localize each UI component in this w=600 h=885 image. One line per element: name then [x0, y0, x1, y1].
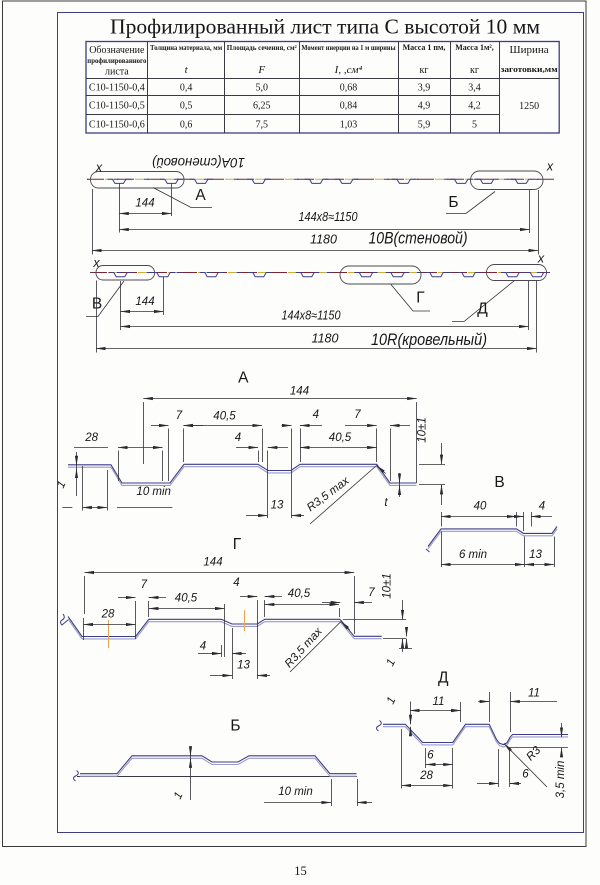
svg-text:5,9: 5,9 — [418, 119, 431, 130]
svg-text:4: 4 — [233, 577, 239, 589]
svg-text:5: 5 — [472, 119, 477, 130]
svg-text:Момент инерции на 1 м ширины: Момент инерции на 1 м ширины — [302, 45, 397, 52]
svg-text:Г: Г — [233, 536, 242, 553]
svg-text:40,5: 40,5 — [329, 432, 352, 444]
svg-text:Обозначение: Обозначение — [89, 45, 145, 56]
svg-text:15: 15 — [294, 864, 307, 878]
svg-text:профилированного: профилированного — [87, 58, 147, 65]
svg-text:40,5: 40,5 — [288, 588, 311, 600]
svg-text:13: 13 — [237, 660, 250, 672]
svg-text:С10-1150-0,5: С10-1150-0,5 — [89, 101, 145, 112]
svg-text:3,9: 3,9 — [418, 83, 431, 94]
svg-text:3,4: 3,4 — [468, 83, 481, 94]
svg-text:11: 11 — [528, 688, 540, 700]
svg-text:144x8≈1150: 144x8≈1150 — [282, 309, 341, 323]
svg-text:4,2: 4,2 — [468, 101, 481, 112]
svg-text:40,5: 40,5 — [213, 411, 236, 423]
svg-text:С10-1150-0,4: С10-1150-0,4 — [89, 83, 145, 94]
svg-text:кг: кг — [470, 65, 479, 76]
svg-text:Масса 1 пм,: Масса 1 пм, — [403, 43, 446, 52]
svg-text:Д: Д — [438, 670, 449, 687]
svg-text:В: В — [494, 474, 504, 491]
svg-text:7: 7 — [141, 579, 148, 591]
svg-text:4: 4 — [235, 432, 241, 444]
svg-text:Г: Г — [416, 290, 425, 307]
svg-text:10±1: 10±1 — [381, 573, 393, 599]
svg-text:4: 4 — [200, 641, 206, 653]
svg-text:144: 144 — [135, 198, 154, 210]
svg-text:28: 28 — [101, 609, 115, 621]
svg-text:144: 144 — [290, 386, 309, 398]
svg-text:28: 28 — [84, 432, 98, 444]
svg-text:I, ,см⁴: I, ,см⁴ — [334, 64, 363, 76]
svg-text:5,0: 5,0 — [256, 83, 269, 94]
svg-text:3,5 min: 3,5 min — [555, 761, 567, 799]
svg-text:144: 144 — [135, 296, 154, 308]
svg-text:Ширина: Ширина — [510, 44, 549, 56]
svg-text:10R(кровельный): 10R(кровельный) — [371, 330, 487, 349]
svg-text:1180: 1180 — [312, 332, 339, 346]
svg-text:Д: Д — [477, 301, 488, 318]
svg-text:С10-1150-0,6: С10-1150-0,6 — [89, 119, 145, 130]
svg-text:40,5: 40,5 — [175, 593, 198, 605]
svg-text:x: x — [537, 252, 545, 266]
svg-text:А: А — [195, 187, 206, 204]
svg-text:10 min: 10 min — [136, 486, 171, 498]
svg-text:Б: Б — [448, 194, 458, 211]
svg-text:Толщина материала, мм: Толщина материала, мм — [150, 45, 222, 52]
svg-text:6: 6 — [427, 750, 434, 762]
svg-text:7,5: 7,5 — [256, 119, 269, 130]
svg-text:1,03: 1,03 — [340, 119, 358, 130]
svg-text:7: 7 — [354, 409, 361, 421]
svg-text:0,4: 0,4 — [180, 83, 193, 94]
svg-text:10 min: 10 min — [278, 786, 313, 798]
svg-text:x: x — [92, 256, 100, 270]
svg-text:F: F — [257, 64, 265, 76]
svg-text:Профилированный лист типа С вы: Профилированный лист типа С высотой 10 м… — [110, 15, 540, 39]
svg-text:7: 7 — [176, 410, 183, 422]
svg-text:0,5: 0,5 — [180, 101, 193, 112]
svg-text:6,25: 6,25 — [253, 101, 271, 112]
svg-text:В: В — [92, 296, 102, 313]
svg-text:заготовки,мм: заготовки,мм — [501, 65, 559, 74]
svg-text:0,6: 0,6 — [180, 119, 193, 130]
svg-text:1250: 1250 — [519, 101, 539, 112]
svg-text:4: 4 — [539, 501, 545, 513]
svg-text:40: 40 — [474, 501, 487, 513]
svg-text:4: 4 — [313, 409, 319, 421]
svg-text:10В(стеновой): 10В(стеновой) — [369, 229, 468, 248]
svg-text:28: 28 — [419, 770, 433, 782]
svg-text:0,68: 0,68 — [340, 83, 358, 94]
svg-text:0,84: 0,84 — [340, 101, 358, 112]
svg-text:13: 13 — [271, 500, 284, 512]
svg-text:11: 11 — [433, 696, 445, 708]
svg-text:6 min: 6 min — [459, 549, 487, 561]
svg-text:10±1: 10±1 — [417, 417, 429, 443]
svg-text:144x8≈1150: 144x8≈1150 — [299, 210, 358, 224]
svg-text:13: 13 — [529, 549, 542, 561]
svg-text:листа: листа — [105, 67, 129, 78]
svg-text:6: 6 — [522, 769, 529, 781]
svg-text:10А(стеновой): 10А(стеновой) — [152, 155, 245, 170]
svg-text:144: 144 — [203, 557, 222, 569]
svg-text:Масса 1м²,: Масса 1м², — [455, 43, 494, 52]
svg-text:Б: Б — [230, 718, 240, 735]
svg-text:x: x — [546, 160, 554, 174]
svg-text:А: А — [238, 370, 249, 387]
svg-text:1180: 1180 — [310, 233, 337, 247]
svg-text:7: 7 — [368, 587, 375, 599]
svg-text:кг: кг — [420, 65, 429, 76]
svg-text:4,9: 4,9 — [418, 101, 431, 112]
svg-text:Площадь сечения, см²: Площадь сечения, см² — [227, 45, 297, 52]
svg-text:x: x — [95, 161, 103, 175]
